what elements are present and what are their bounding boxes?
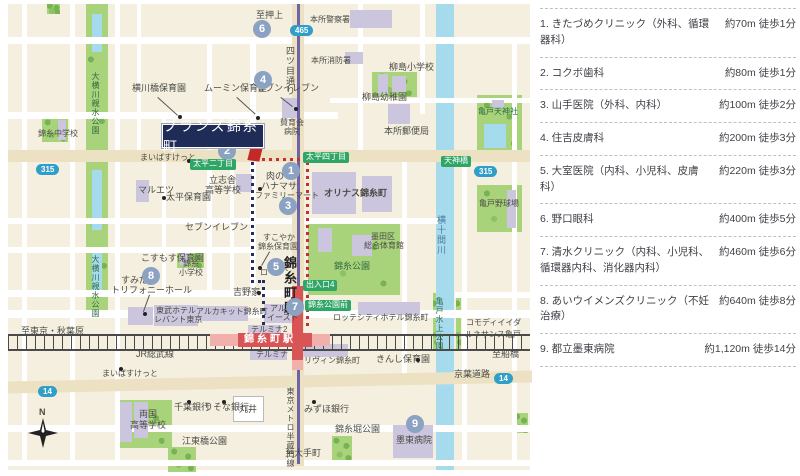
poi-dot <box>119 367 123 371</box>
map-label: レバント東京 <box>154 316 202 324</box>
road <box>115 4 120 460</box>
map-label: 大横川親水公園 <box>91 72 99 135</box>
intersection-badge: 出入口4 <box>303 280 337 291</box>
police-station-bldg <box>350 10 392 28</box>
map-label: 柳島小学校 <box>389 63 434 72</box>
map-label: 丸井 <box>239 405 257 414</box>
map-label: 横十間川 <box>436 215 445 255</box>
facility-distance: 約640m 徒歩8分 <box>719 294 796 310</box>
map-label: 亀戸野球場 <box>479 200 519 208</box>
map-label: 高等学校 <box>130 421 166 430</box>
map-label: 至大手町 <box>285 449 321 458</box>
green-patch <box>47 4 60 14</box>
map-label: 錦糸堀公園 <box>335 425 380 434</box>
road <box>8 460 530 466</box>
poi-dot <box>143 312 147 316</box>
map-label: 横川橋保育園 <box>132 84 186 93</box>
map-label: テルミナ2 <box>251 326 287 334</box>
map-label: 京葉道路 <box>454 370 490 379</box>
facility-distance: 約100m 徒歩2分 <box>719 98 796 114</box>
map-label: トリフォニーホール <box>111 286 192 295</box>
intersection-badge: 天神橋 <box>441 156 471 167</box>
facility-item: 4. 住吉皮膚科約200m 徒歩3分 <box>540 123 796 156</box>
road <box>420 4 425 114</box>
map-marker-5: 5 <box>267 258 285 276</box>
bldg <box>392 76 406 92</box>
park-water <box>92 14 102 52</box>
shrine-pond <box>484 124 506 148</box>
triphony-hall-bldg <box>128 307 153 325</box>
intersection-badge: 太平四丁目 <box>303 152 349 163</box>
facility-distance: 約70m 徒歩1分 <box>725 17 796 33</box>
bldg <box>507 190 516 228</box>
facility-item: 6. 野口眼科約400m 徒歩5分 <box>540 204 796 237</box>
road <box>462 155 467 460</box>
map-label: 至船橋 <box>492 350 519 359</box>
road <box>70 4 75 466</box>
map-label: JR総武線 <box>136 350 174 359</box>
map-label: 病院 <box>284 128 300 136</box>
map-label: 亀戸水上公園 <box>435 297 443 351</box>
facility-distance: 約460m 徒歩6分 <box>719 245 796 261</box>
facility-distance: 約400m 徒歩5分 <box>719 212 796 228</box>
map-label: 至押上 <box>256 11 283 20</box>
post-office-bldg <box>388 104 410 124</box>
map-label: 錦糸町駅 <box>244 335 296 345</box>
poi-dot <box>187 400 191 404</box>
map-label: 本所消防署 <box>311 57 351 65</box>
map-label: 錦糸中学校 <box>38 130 78 138</box>
facility-name: 9. 都立墨東病院 <box>540 342 704 358</box>
map-label: 亀戸天神社 <box>478 108 518 116</box>
map-marker-7: 7 <box>286 298 304 316</box>
intersection-badge: 太平二丁目 <box>190 159 236 170</box>
bldg <box>318 228 332 252</box>
road <box>8 37 530 44</box>
map-label: コモディイイダ <box>466 319 521 327</box>
facility-item: 8. あいウイメンズクリニック（不妊治療）約640m 徒歩8分 <box>540 286 796 335</box>
map-label: きんし保育園 <box>376 355 430 364</box>
map-label: みずほ銀行 <box>304 405 349 414</box>
bldg <box>378 74 388 94</box>
map-label: 錦糸 <box>183 260 199 268</box>
poi-dot <box>416 358 420 362</box>
map-label: 錦糸公園 <box>334 262 370 271</box>
map-marker-3: 3 <box>279 197 297 215</box>
medical-facilities-list: 1. きたづめクリニック（外科、循環器科）約70m 徒歩1分2. コクボ歯科約8… <box>540 8 796 367</box>
road <box>8 247 253 253</box>
facility-distance: 約220m 徒歩3分 <box>719 164 796 180</box>
map-label: ハナマサ <box>261 182 297 191</box>
facility-item: 5. 大室医院（内科、小児科、皮膚科）約220m 徒歩3分 <box>540 156 796 205</box>
map-label: 至東京・秋葉原 <box>21 327 84 336</box>
map-label: 東武ホテル <box>156 307 196 315</box>
property-label: ブランズ錦糸町 <box>162 124 264 148</box>
facility-name: 6. 野口眼科 <box>540 212 719 228</box>
poi-dot <box>162 196 166 200</box>
facility-item: 9. 都立墨東病院約1,120m 徒歩14分 <box>540 334 796 367</box>
map-marker-1: 1 <box>282 162 300 180</box>
route-number-badge: 14 <box>38 386 57 397</box>
facility-name: 5. 大室医院（内科、小児科、皮膚科） <box>540 164 719 196</box>
location-map: ブランズ錦糸町 至押上本所警察署本所消防署四ツ目通り柳島小学校柳島幼稚園本所郵便… <box>0 0 534 476</box>
route-navy <box>251 162 254 282</box>
map-label: オリナス錦糸町 <box>324 189 387 198</box>
intersection-badge: 錦糸公園前 <box>305 300 351 311</box>
map-label: まいばすけっと <box>102 370 158 378</box>
map-label: アルカキット錦糸町 <box>196 308 268 316</box>
map-label: 江東橋公園 <box>182 437 227 446</box>
poi-dot <box>312 400 316 404</box>
route-red <box>262 158 308 161</box>
map-label: 墨東病院 <box>396 436 432 445</box>
road <box>22 4 27 466</box>
map-label: 柳島幼稚園 <box>362 93 407 102</box>
map-label: セブンイレブン <box>185 223 248 232</box>
map-label: ルネサンス亀戸 <box>465 331 521 339</box>
map-label: 両国 <box>139 410 157 419</box>
facility-item: 7. 清水クリニック（内科、小児科、循環器内科、消化器内科）約460m 徒歩6分 <box>540 237 796 286</box>
facility-name: 7. 清水クリニック（内科、小児科、循環器内科、消化器内科） <box>540 245 719 277</box>
map-label: N <box>39 408 46 417</box>
facility-item: 2. コクボ歯科約80m 徒歩1分 <box>540 58 796 91</box>
map-label: 本所郵便局 <box>384 127 429 136</box>
facility-name: 1. きたづめクリニック（外科、循環器科） <box>540 17 725 49</box>
route-number-badge: 465 <box>290 25 313 36</box>
map-label: 立志舎 <box>209 176 236 185</box>
facility-name: 8. あいウイメンズクリニック（不妊治療） <box>540 294 719 326</box>
hanzomon-line <box>297 4 300 464</box>
map-label: 総合体育館 <box>364 242 404 250</box>
map-label: 吉野家 <box>233 288 260 297</box>
route-number-badge: 315 <box>474 166 497 177</box>
facility-distance: 約200m 徒歩3分 <box>719 131 796 147</box>
map-label: リヴィン錦糸町 <box>304 357 360 365</box>
poi-dot <box>222 400 226 404</box>
road <box>512 37 517 460</box>
map-label: 賛育会 <box>280 119 304 127</box>
poi-dot <box>258 187 262 191</box>
map-label: 錦糸保育園 <box>258 243 298 251</box>
facility-name: 4. 住吉皮膚科 <box>540 131 719 147</box>
map-label: 小学校 <box>179 269 203 277</box>
map-label: 墨田区 <box>371 233 395 241</box>
map-marker-8: 8 <box>142 267 160 285</box>
map-label: 大横川親水公園 <box>91 255 99 318</box>
route-navy <box>262 280 265 326</box>
map-label: 本所警察署 <box>310 16 350 24</box>
map-label: 高等学校 <box>205 186 241 195</box>
facility-name: 3. 山手医院（外科、内科） <box>540 98 719 114</box>
map-marker-6: 6 <box>253 20 271 38</box>
kinshibori-park <box>332 436 352 462</box>
map-label: テルミナ <box>256 351 288 359</box>
page: ブランズ錦糸町 至押上本所警察署本所消防署四ツ目通り柳島小学校柳島幼稚園本所郵便… <box>0 0 800 476</box>
facility-name: 2. コクボ歯科 <box>540 66 725 82</box>
compass-icon <box>28 418 58 448</box>
map-label: すこやか <box>263 234 295 242</box>
poi-dot <box>258 266 262 270</box>
road <box>8 425 530 432</box>
road <box>137 4 141 152</box>
poi-dot <box>294 107 298 111</box>
route-number-badge: 14 <box>494 373 513 384</box>
map-label: ロッテシティホテル錦糸町 <box>333 314 429 322</box>
map-marker-9: 9 <box>406 415 424 433</box>
facility-item: 1. きたづめクリニック（外科、循環器科）約70m 徒歩1分 <box>540 9 796 58</box>
map-marker-4: 4 <box>254 71 272 89</box>
facility-item: 3. 山手医院（外科、内科）約100m 徒歩2分 <box>540 90 796 123</box>
facility-distance: 約80m 徒歩1分 <box>725 66 796 82</box>
poi-dot <box>257 291 261 295</box>
facility-distance: 約1,120m 徒歩14分 <box>704 342 796 358</box>
route-number-badge: 315 <box>36 164 59 175</box>
